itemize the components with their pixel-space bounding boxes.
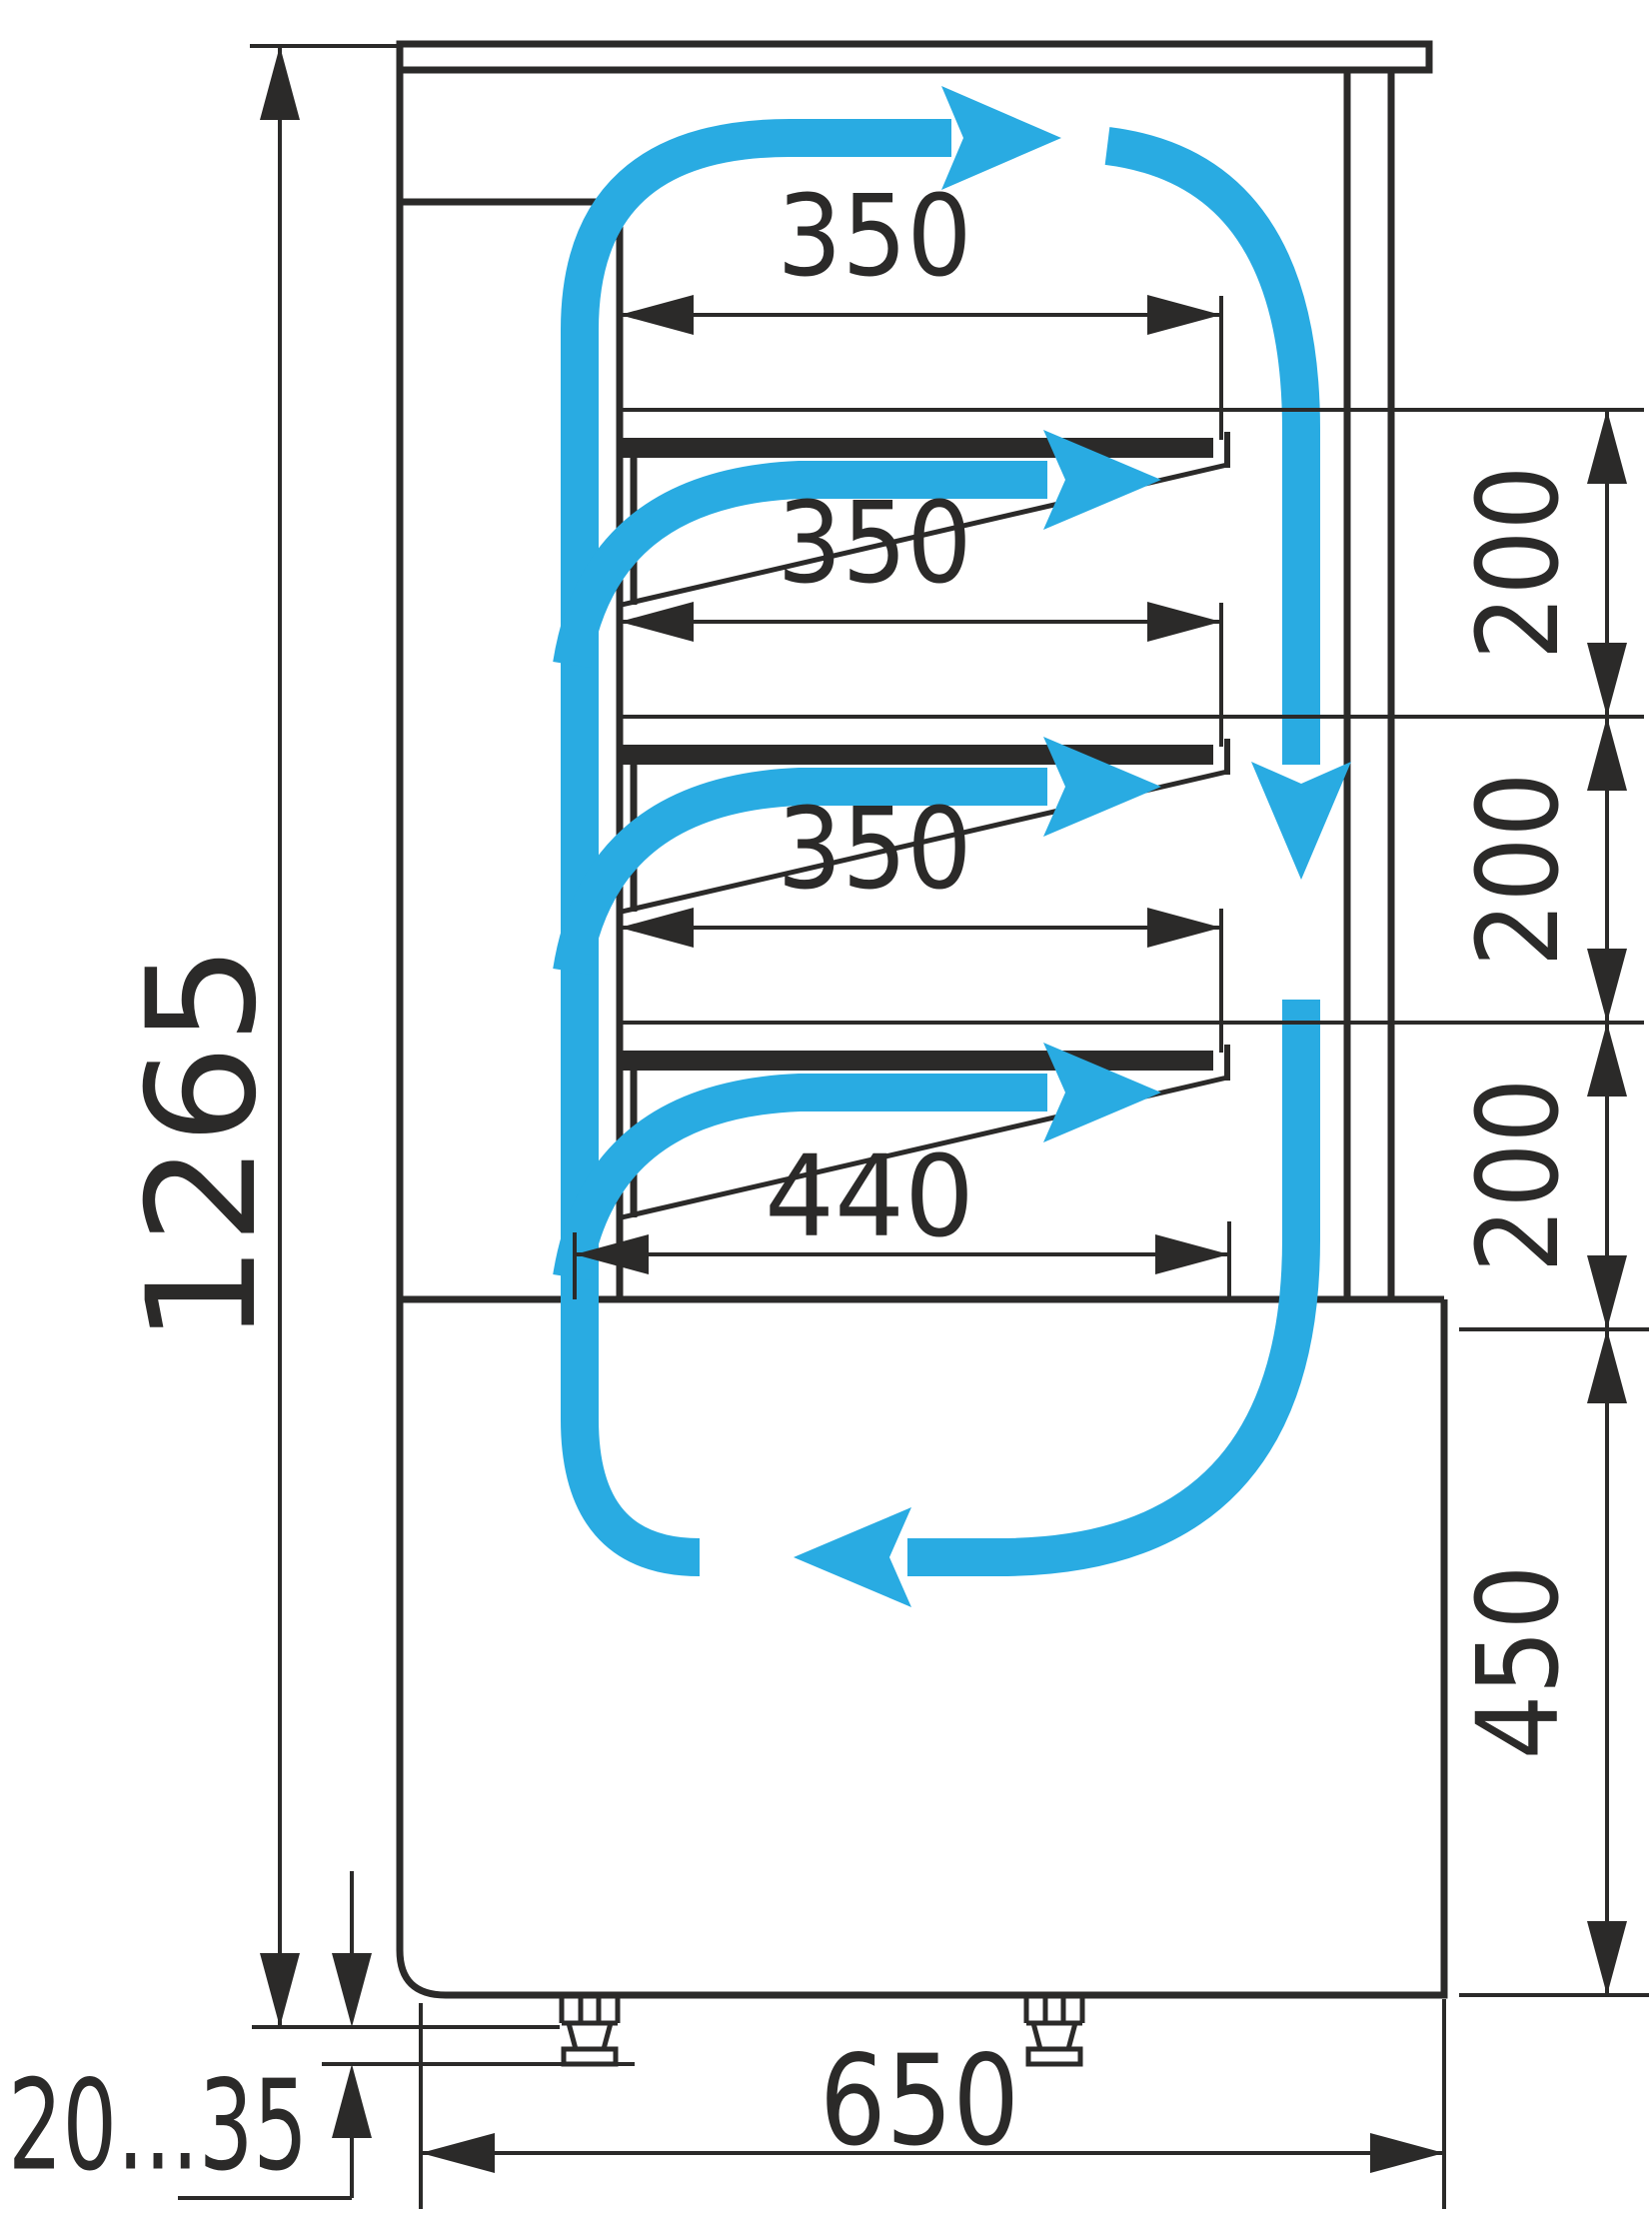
- dim-350-1: [620, 295, 1221, 440]
- label-1265: 1265: [116, 945, 290, 1344]
- label-440: 440: [765, 1132, 974, 1262]
- label-350-1: 350: [778, 172, 972, 302]
- label-450: 450: [1454, 1565, 1584, 1760]
- technical-drawing-page: 350 350 350 440 200 200 200 450 1265 650…: [0, 0, 1652, 2213]
- dim-350-2: [620, 602, 1221, 747]
- adjustable-foot-right: [1026, 1995, 1082, 2064]
- airflow-down-arrowhead: [1251, 762, 1351, 880]
- label-350-2: 350: [778, 479, 972, 609]
- label-650: 650: [820, 2029, 1019, 2174]
- label-200-1: 200: [1454, 466, 1584, 661]
- adjustable-foot-left: [562, 1995, 618, 2064]
- display-case-airflow-diagram: 350 350 350 440 200 200 200 450 1265 650…: [0, 0, 1652, 2213]
- label-200-2: 200: [1454, 773, 1584, 968]
- top-cap: [400, 44, 1429, 70]
- dim-350-3: [620, 908, 1221, 1053]
- label-feet-range: 20...35: [8, 2054, 308, 2199]
- label-350-3: 350: [778, 785, 972, 915]
- airflow-return-arrowhead: [794, 1507, 911, 1607]
- label-200-3: 200: [1454, 1079, 1584, 1273]
